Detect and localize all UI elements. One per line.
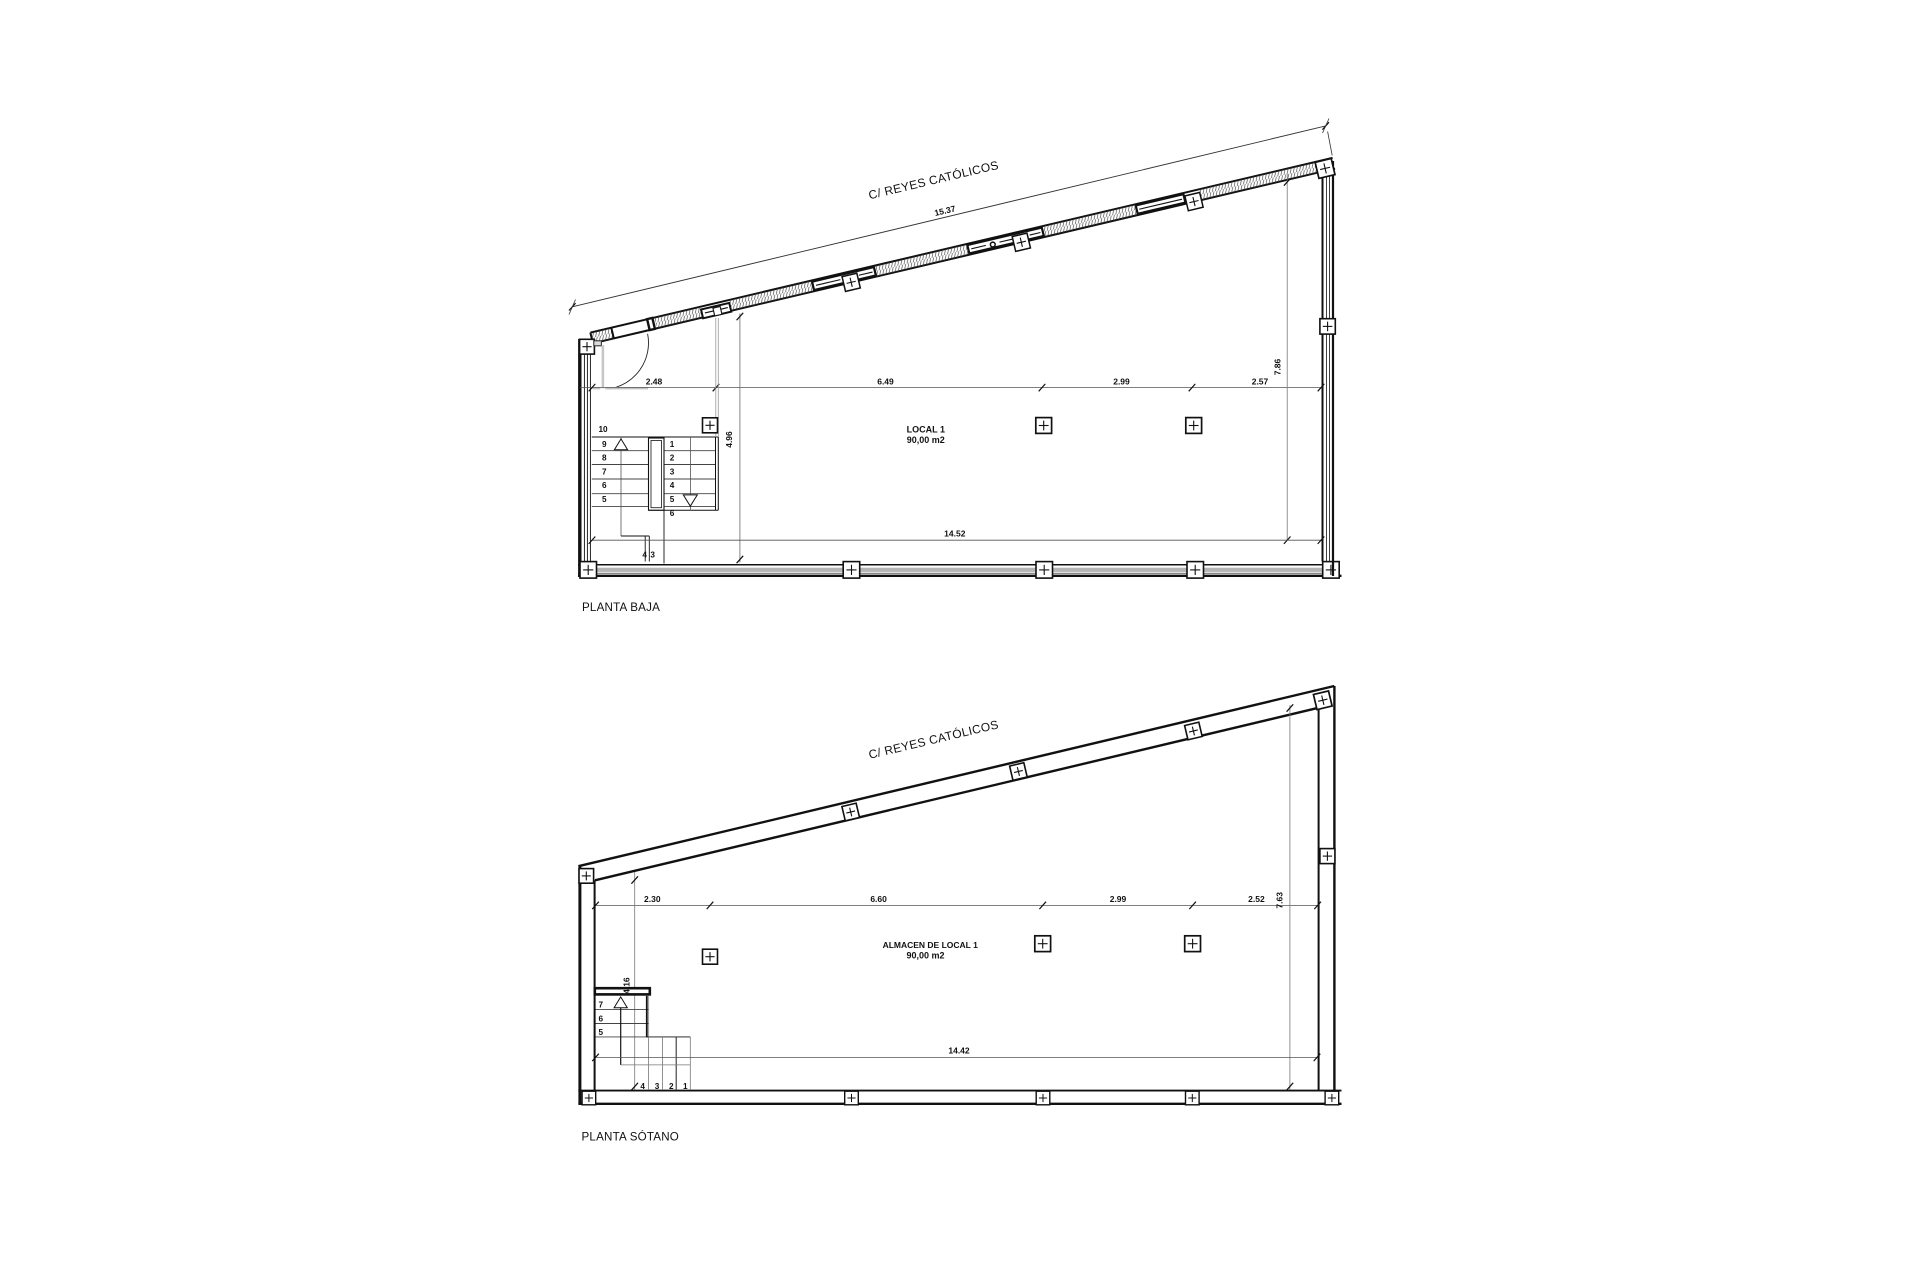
- svg-text:6: 6: [670, 509, 675, 518]
- svg-text:2.99: 2.99: [1110, 894, 1127, 904]
- svg-text:1: 1: [670, 440, 675, 449]
- svg-text:4.96: 4.96: [724, 431, 734, 448]
- svg-text:90,00 m2: 90,00 m2: [907, 435, 945, 445]
- svg-text:5: 5: [599, 1028, 604, 1037]
- svg-text:PLANTA SÓTANO: PLANTA SÓTANO: [582, 1131, 680, 1144]
- svg-text:3: 3: [670, 467, 675, 476]
- svg-text:2: 2: [669, 1082, 674, 1091]
- svg-text:4.16: 4.16: [622, 977, 632, 994]
- svg-text:7.86: 7.86: [1273, 358, 1283, 375]
- svg-text:10: 10: [598, 425, 608, 434]
- svg-text:9: 9: [602, 440, 607, 449]
- svg-text:2.52: 2.52: [1248, 894, 1265, 904]
- svg-text:2.48: 2.48: [646, 376, 663, 386]
- svg-text:ALMACEN DE LOCAL 1: ALMACEN DE LOCAL 1: [883, 940, 979, 950]
- svg-text:1: 1: [683, 1082, 688, 1091]
- svg-text:6: 6: [599, 1014, 604, 1023]
- svg-text:6.60: 6.60: [870, 894, 887, 904]
- svg-text:14.52: 14.52: [944, 528, 966, 538]
- svg-text:7.63: 7.63: [1274, 892, 1284, 909]
- svg-text:90,00 m2: 90,00 m2: [906, 950, 944, 960]
- svg-text:6: 6: [602, 481, 607, 490]
- svg-text:3: 3: [655, 1082, 660, 1091]
- svg-text:5: 5: [670, 495, 675, 504]
- svg-text:3: 3: [650, 551, 655, 560]
- svg-text:PLANTA BAJA: PLANTA BAJA: [582, 601, 660, 614]
- svg-text:7: 7: [599, 1001, 604, 1010]
- svg-text:5: 5: [602, 495, 607, 504]
- svg-text:4: 4: [642, 551, 647, 560]
- svg-text:4: 4: [670, 481, 675, 490]
- svg-text:2.57: 2.57: [1252, 376, 1269, 386]
- svg-text:2.99: 2.99: [1113, 376, 1130, 386]
- svg-text:7: 7: [602, 467, 607, 476]
- svg-text:2.30: 2.30: [644, 894, 661, 904]
- svg-text:14.42: 14.42: [948, 1045, 970, 1055]
- svg-text:8: 8: [602, 454, 607, 463]
- svg-text:2: 2: [670, 454, 675, 463]
- svg-text:6.49: 6.49: [877, 376, 894, 386]
- svg-text:4: 4: [640, 1082, 645, 1091]
- svg-text:LOCAL 1: LOCAL 1: [907, 424, 945, 434]
